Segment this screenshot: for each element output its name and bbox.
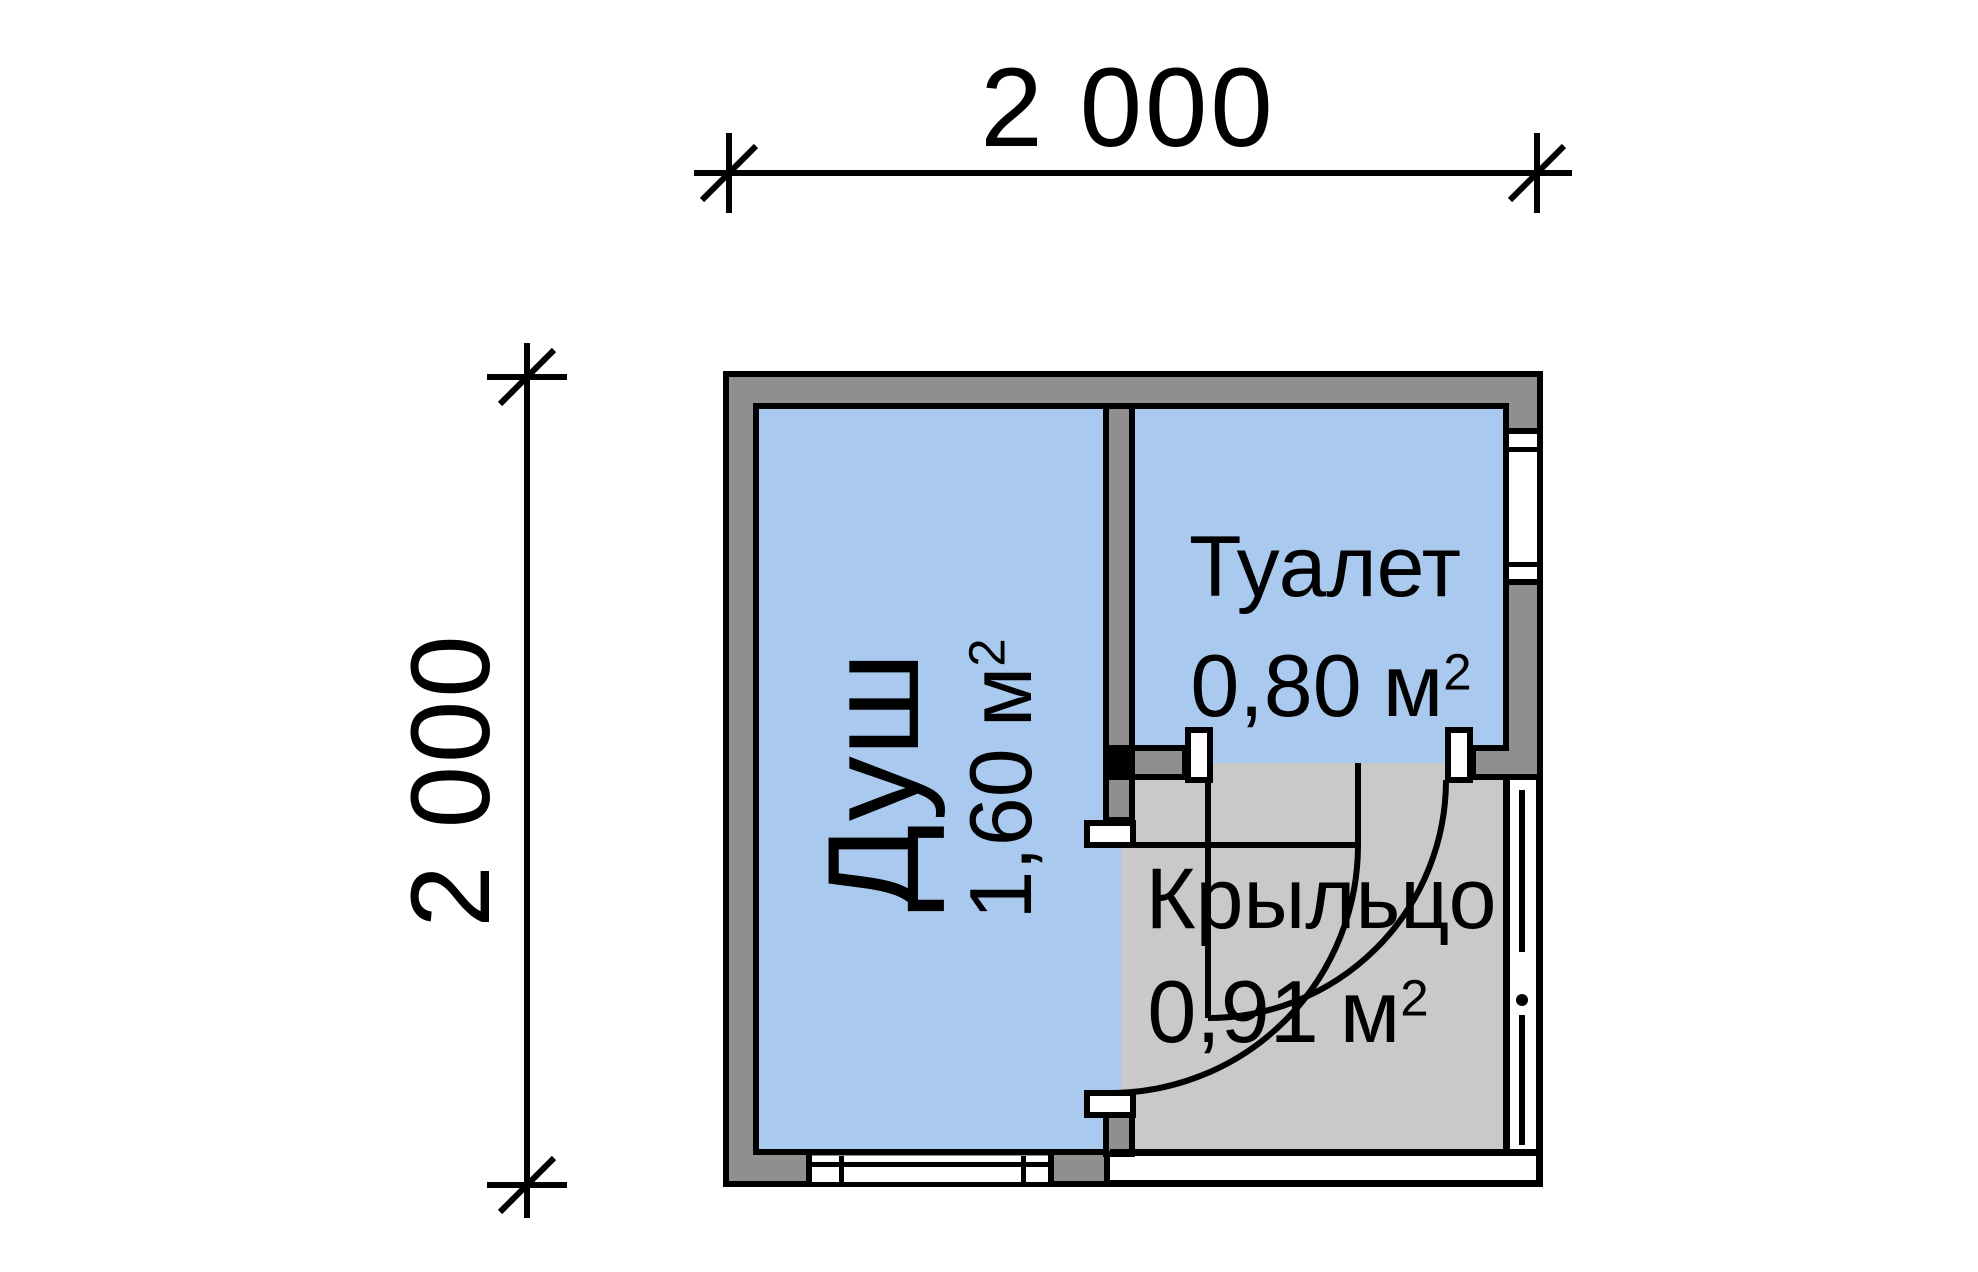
shower-door-leaf [1110,842,1358,848]
toilet-area-label: 0,80м2 [1131,642,1531,730]
porch-edge-right-center-dot [1516,994,1528,1006]
porch-edge-right-center-line-b [1519,1015,1525,1145]
shower-door-frame-line [1355,763,1361,848]
shower-window-mullion-right [1021,1156,1026,1182]
porch-area-unit: м [1340,962,1401,1061]
toilet-area-value: 0,80 [1190,636,1361,735]
toilet-room-label: Туалет [1125,524,1525,610]
left-wall-core [729,377,753,1181]
shower-window-jamb-right [1048,1149,1054,1187]
porch-room-label: Крыльцо [1121,856,1521,942]
porch-edge-right-inner-line [1503,780,1510,1153]
toilet-door-jamb-left [1191,733,1207,777]
shower-room-label: Душ [808,582,940,982]
porch-area-value: 0,91 [1147,962,1318,1061]
toilet-area-exponent: 2 [1443,643,1471,700]
dimension-label-top: 2 000 [878,52,1378,164]
top-wall-core [729,377,1537,403]
shower-window-mullion-left [839,1156,844,1182]
shower-area-value: 1,60 [951,748,1050,919]
porch-area-label: 0,91м2 [1088,968,1488,1056]
shower-area-exponent: 2 [958,638,1015,666]
porch-edge-bottom-outer-line [1110,1180,1543,1187]
dimension-label-left: 2 000 [395,530,525,1030]
porch-area-exponent: 2 [1400,969,1428,1026]
interior-wall-horizontal-left-core [1135,751,1182,774]
floor-plan-page: 2 000 2 000 Душ 1,60м2 Туалет 0,80м2 Кры… [0,0,1978,1272]
dimension-line-top [694,170,1572,176]
shower-door-jamb-top [1090,826,1130,842]
toilet-area-unit: м [1383,636,1444,735]
interior-wall-stub-core [1109,1118,1129,1151]
shower-door-jamb-bottom [1090,1096,1130,1112]
interior-wall-horizontal-right-core [1476,751,1509,774]
toilet-window-mullion-top [1503,447,1543,452]
toilet-window-frame-top [1503,428,1543,434]
toilet-door-jamb-right [1451,733,1467,777]
porch-doorway-floor-north [1210,763,1448,780]
porch-edge-bottom-inner-line [1110,1149,1543,1156]
toilet-doorway-floor [1210,745,1448,763]
porch-edge-right-outer-line [1536,780,1543,1187]
shower-area-unit: м [951,667,1050,728]
shower-area-label: 1,60м2 [957,579,1047,979]
shower-window-jamb-left [806,1149,812,1187]
